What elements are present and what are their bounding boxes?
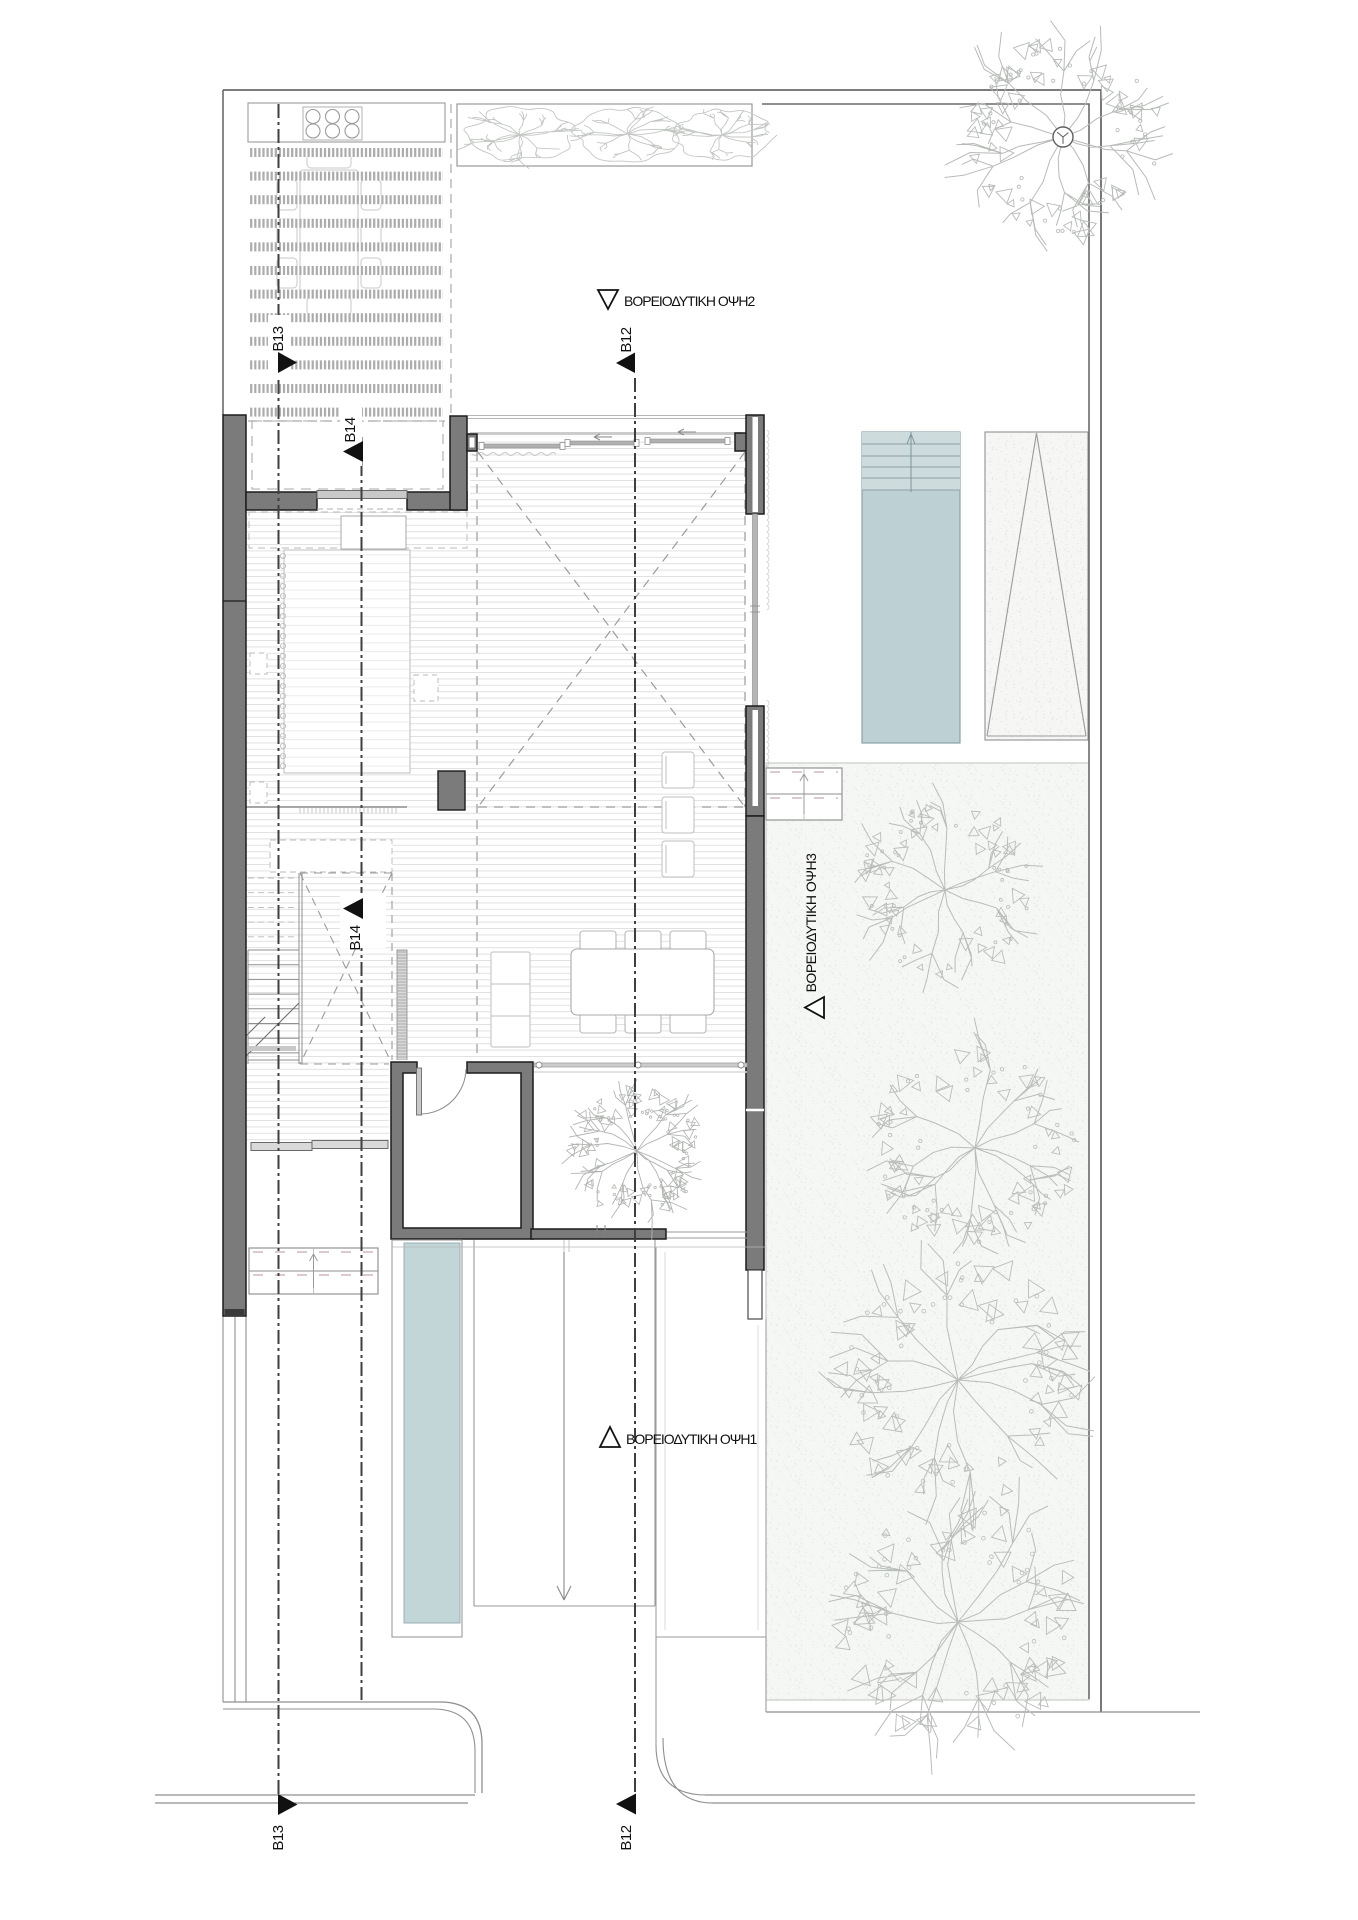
svg-text:ΒΟΡΕΙΟΔΥΤΙΚΗ ΟΨΗ1: ΒΟΡΕΙΟΔΥΤΙΚΗ ΟΨΗ1: [626, 1431, 758, 1447]
svg-text:B14: B14: [342, 417, 359, 442]
svg-text:B13: B13: [270, 1825, 287, 1850]
svg-text:B14: B14: [347, 925, 364, 950]
svg-text:B12: B12: [618, 1825, 635, 1850]
svg-text:ΒΟΡΕΙΟΔΥΤΙΚΗ ΟΨΗ3: ΒΟΡΕΙΟΔΥΤΙΚΗ ΟΨΗ3: [803, 853, 819, 993]
svg-text:B12: B12: [618, 327, 635, 352]
svg-text:B13: B13: [270, 326, 287, 351]
svg-text:ΒΟΡΕΙΟΔΥΤΙΚΗ ΟΨΗ2: ΒΟΡΕΙΟΔΥΤΙΚΗ ΟΨΗ2: [624, 293, 756, 309]
